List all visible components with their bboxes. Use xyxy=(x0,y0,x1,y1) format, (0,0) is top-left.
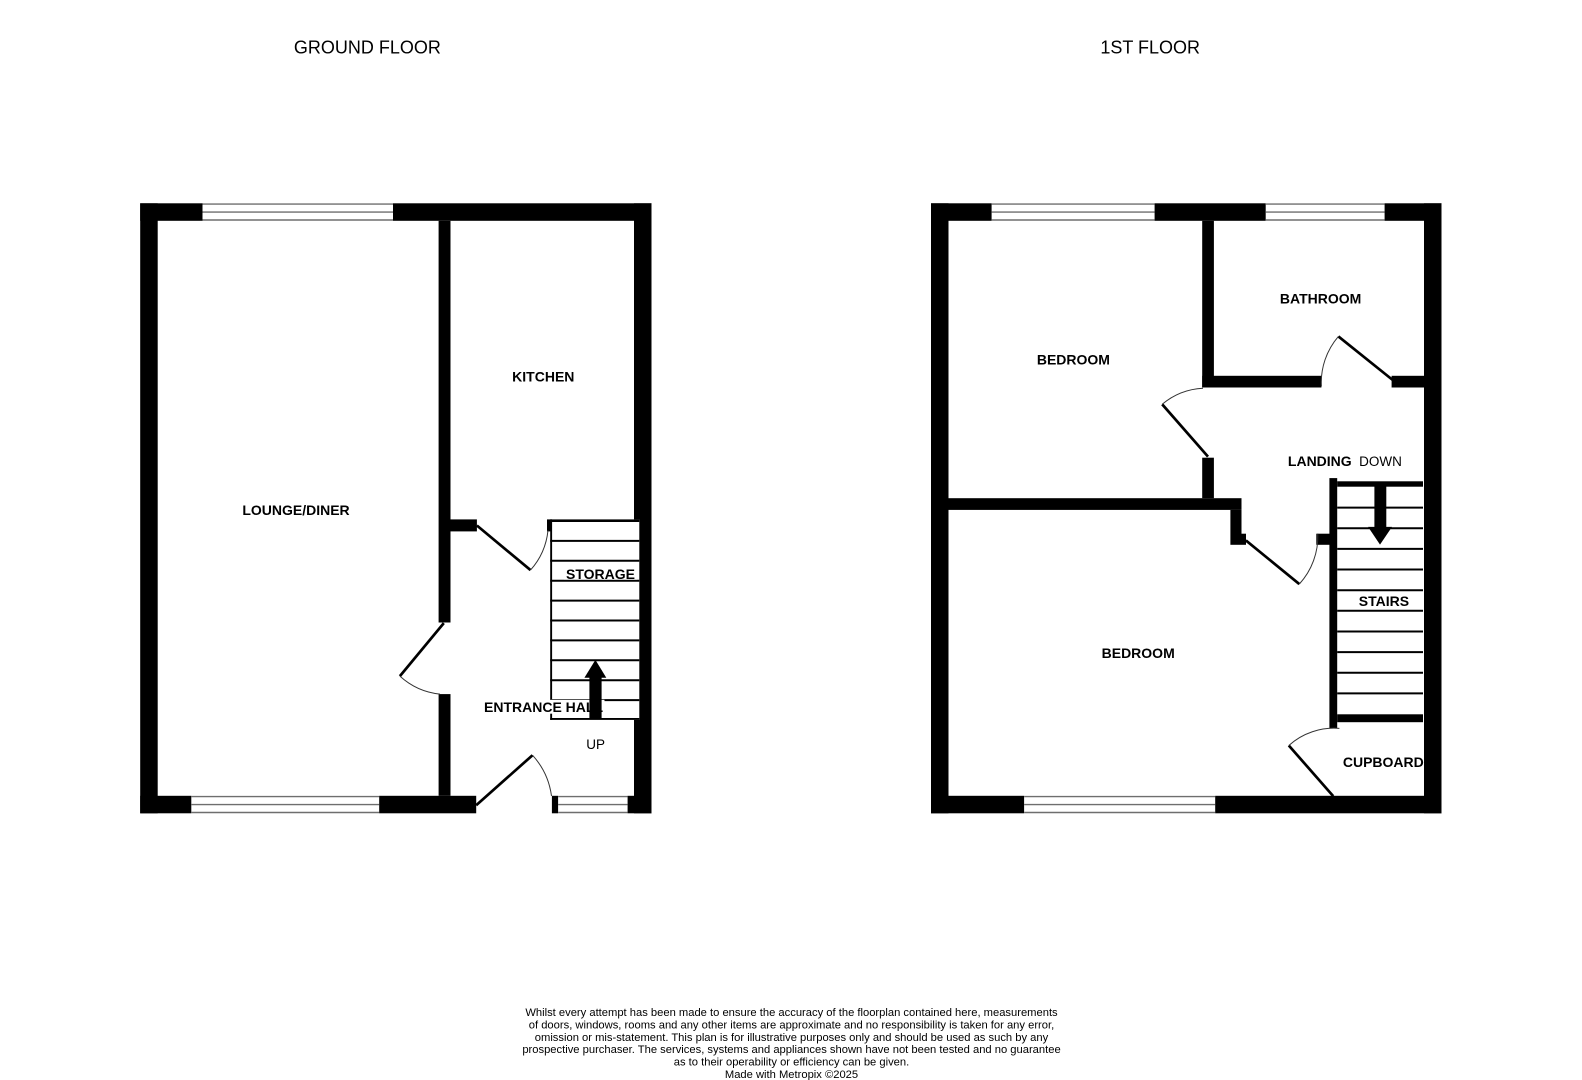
svg-text:KITCHEN: KITCHEN xyxy=(512,369,574,385)
svg-text:Whilst every attempt has been: Whilst every attempt has been made to en… xyxy=(525,1007,1058,1019)
svg-text:omission or mis-statement. Thi: omission or mis-statement. This plan is … xyxy=(535,1032,1049,1044)
svg-text:LANDING: LANDING xyxy=(1288,453,1352,469)
svg-text:DOWN: DOWN xyxy=(1359,454,1402,469)
svg-text:CUPBOARD: CUPBOARD xyxy=(1343,754,1424,770)
svg-text:prospective purchaser. The ser: prospective purchaser. The services, sys… xyxy=(522,1044,1060,1056)
svg-text:ENTRANCE HALL: ENTRANCE HALL xyxy=(484,699,603,715)
svg-text:of doors, windows, rooms and a: of doors, windows, rooms and any other i… xyxy=(529,1019,1054,1031)
svg-text:Made with Metropix ©2025: Made with Metropix ©2025 xyxy=(725,1069,858,1080)
svg-text:as to their operability or eff: as to their operability or efficiency ca… xyxy=(674,1057,909,1069)
svg-text:BEDROOM: BEDROOM xyxy=(1037,351,1110,367)
svg-text:BEDROOM: BEDROOM xyxy=(1102,645,1175,661)
svg-text:GROUND FLOOR: GROUND FLOOR xyxy=(294,37,441,57)
svg-text:STORAGE: STORAGE xyxy=(566,566,635,582)
svg-text:BATHROOM: BATHROOM xyxy=(1280,290,1361,306)
svg-text:1ST FLOOR: 1ST FLOOR xyxy=(1100,37,1200,57)
svg-text:LOUNGE/DINER: LOUNGE/DINER xyxy=(242,502,349,518)
svg-text:STAIRS: STAIRS xyxy=(1359,593,1409,609)
svg-text:UP: UP xyxy=(586,737,605,752)
